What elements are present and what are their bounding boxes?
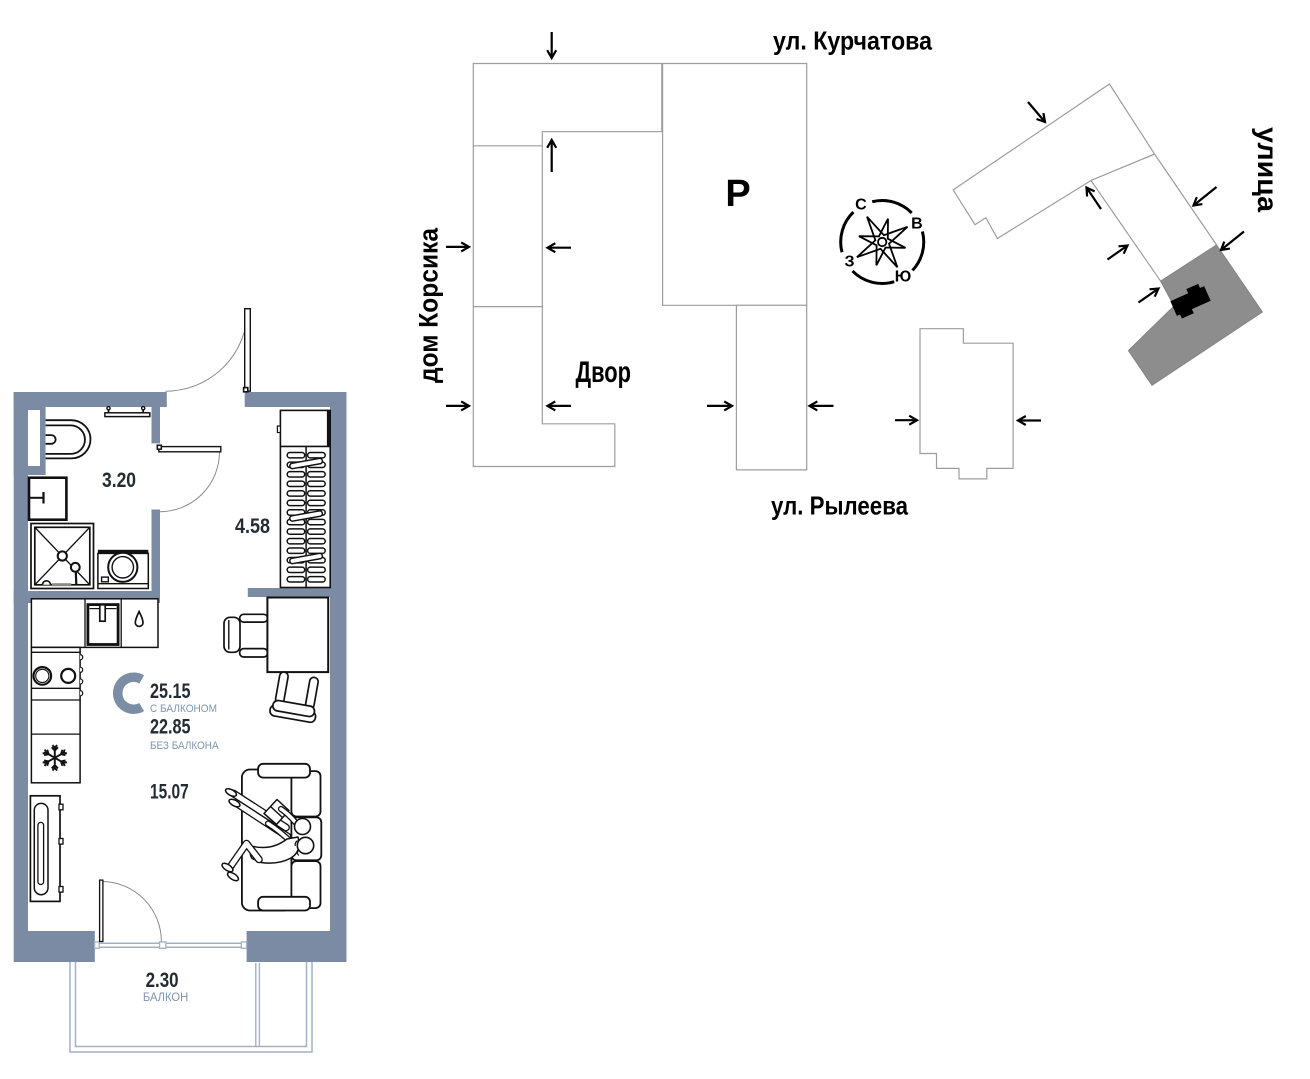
svg-text:С: С (855, 197, 867, 214)
svg-text:БЕЗ БАЛКОНА: БЕЗ БАЛКОНА (150, 740, 219, 752)
svg-text:Двор: Двор (576, 356, 632, 389)
svg-text:дом Корсика: дом Корсика (414, 227, 444, 383)
svg-text:улица: улица (1252, 127, 1283, 213)
svg-text:15.07: 15.07 (150, 780, 189, 804)
svg-text:ул. Курчатова: ул. Курчатова (773, 26, 932, 56)
svg-text:ул. Рылеева: ул. Рылеева (771, 491, 908, 521)
svg-text:Р: Р (725, 173, 750, 215)
svg-text:25.15: 25.15 (150, 679, 191, 703)
svg-text:З: З (844, 254, 854, 271)
svg-text:С БАЛКОНОМ: С БАЛКОНОМ (150, 703, 217, 715)
svg-text:Ю: Ю (895, 269, 912, 286)
svg-text:2.30: 2.30 (146, 968, 179, 992)
svg-text:БАЛКОН: БАЛКОН (143, 992, 188, 1004)
svg-text:В: В (911, 216, 923, 233)
svg-text:22.85: 22.85 (150, 714, 191, 738)
svg-text:4.58: 4.58 (235, 514, 270, 538)
svg-text:3.20: 3.20 (102, 468, 136, 492)
